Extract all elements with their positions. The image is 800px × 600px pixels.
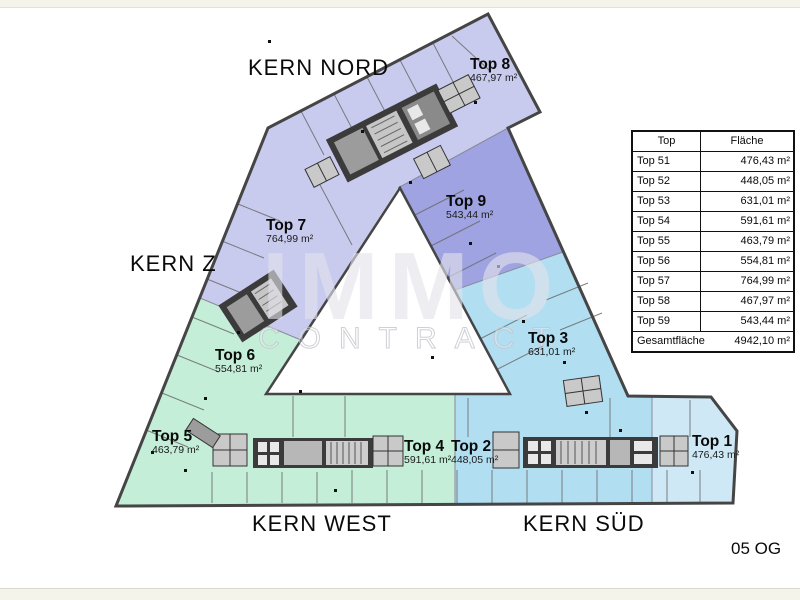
unit-name: Top 5: [152, 429, 199, 445]
cell-area: 448,05 m²: [701, 172, 793, 191]
footer-value: 4942,10 m²: [734, 332, 790, 351]
unit-name: Top 1: [692, 434, 739, 450]
cell-top: Top 53: [633, 192, 701, 211]
cell-top: Top 57: [633, 272, 701, 291]
table-row: Top 53 631,01 m²: [633, 191, 793, 211]
table-header-top: Top: [633, 132, 701, 151]
cell-area: 631,01 m²: [701, 192, 793, 211]
unit-area: 543,44 m²: [446, 210, 493, 221]
unit-area: 467,97 m²: [470, 73, 517, 84]
unit-label-top2: Top 2 448,05 m²: [451, 439, 498, 466]
cell-area: 543,44 m²: [701, 312, 793, 331]
cell-area: 476,43 m²: [701, 152, 793, 171]
floor-plan-page: IMMO CONTRACT KERN NORD KERN Z KERN WEST…: [0, 0, 800, 600]
cell-top: Top 52: [633, 172, 701, 191]
core-kern-sued: [523, 437, 658, 468]
cell-top: Top 56: [633, 252, 701, 271]
cell-area: 591,61 m²: [701, 212, 793, 231]
table-row: Top 58 467,97 m²: [633, 291, 793, 311]
unit-area: 764,99 m²: [266, 234, 313, 245]
core-kern-west: [253, 438, 373, 468]
watermark-contract: CONTRACT: [258, 322, 569, 356]
unit-area: 554,81 m²: [215, 364, 262, 375]
unit-name: Top 3: [528, 331, 575, 347]
table-header-flaeche: Fläche: [701, 132, 793, 151]
unit-name: Top 8: [470, 57, 517, 73]
unit-area: 476,43 m²: [692, 450, 739, 461]
cell-area: 554,81 m²: [701, 252, 793, 271]
table-header-row: Top Fläche: [633, 132, 793, 151]
table-row: Top 54 591,61 m²: [633, 211, 793, 231]
area-table: Top Fläche Top 51 476,43 m² Top 52 448,0…: [631, 130, 795, 353]
unit-name: Top 2: [451, 439, 498, 455]
label-kern-nord: KERN NORD: [248, 55, 389, 81]
footer-label: Gesamtfläche: [637, 332, 705, 351]
cell-top: Top 58: [633, 292, 701, 311]
floor-label: 05 OG: [731, 539, 781, 559]
table-row: Top 55 463,79 m²: [633, 231, 793, 251]
label-kern-west: KERN WEST: [252, 511, 392, 537]
cell-area: 764,99 m²: [701, 272, 793, 291]
cell-top: Top 51: [633, 152, 701, 171]
unit-area: 631,01 m²: [528, 347, 575, 358]
unit-label-top4: Top 4 591,61 m²: [404, 439, 451, 466]
unit-label-top7: Top 7 764,99 m²: [266, 218, 313, 245]
cell-area: 467,97 m²: [701, 292, 793, 311]
label-kern-z: KERN Z: [130, 251, 217, 277]
unit-name: Top 6: [215, 348, 262, 364]
unit-label-top8: Top 8 467,97 m²: [470, 57, 517, 84]
unit-area: 591,61 m²: [404, 455, 451, 466]
table-row: Top 59 543,44 m²: [633, 311, 793, 331]
unit-name: Top 4: [404, 439, 451, 455]
unit-label-top6: Top 6 554,81 m²: [215, 348, 262, 375]
label-kern-sued: KERN SÜD: [523, 511, 645, 537]
unit-label-top1: Top 1 476,43 m²: [692, 434, 739, 461]
unit-area: 463,79 m²: [152, 445, 199, 456]
unit-area: 448,05 m²: [451, 455, 498, 466]
table-row: Top 52 448,05 m²: [633, 171, 793, 191]
table-row: Top 57 764,99 m²: [633, 271, 793, 291]
unit-name: Top 7: [266, 218, 313, 234]
unit-label-top9: Top 9 543,44 m²: [446, 194, 493, 221]
unit-label-top3: Top 3 631,01 m²: [528, 331, 575, 358]
cell-area: 463,79 m²: [701, 232, 793, 251]
table-footer-row: Gesamtfläche 4942,10 m²: [633, 331, 793, 351]
table-row: Top 56 554,81 m²: [633, 251, 793, 271]
cell-top: Top 59: [633, 312, 701, 331]
cell-top: Top 55: [633, 232, 701, 251]
table-row: Top 51 476,43 m²: [633, 151, 793, 171]
unit-name: Top 9: [446, 194, 493, 210]
unit-label-top5: Top 5 463,79 m²: [152, 429, 199, 456]
cell-top: Top 54: [633, 212, 701, 231]
